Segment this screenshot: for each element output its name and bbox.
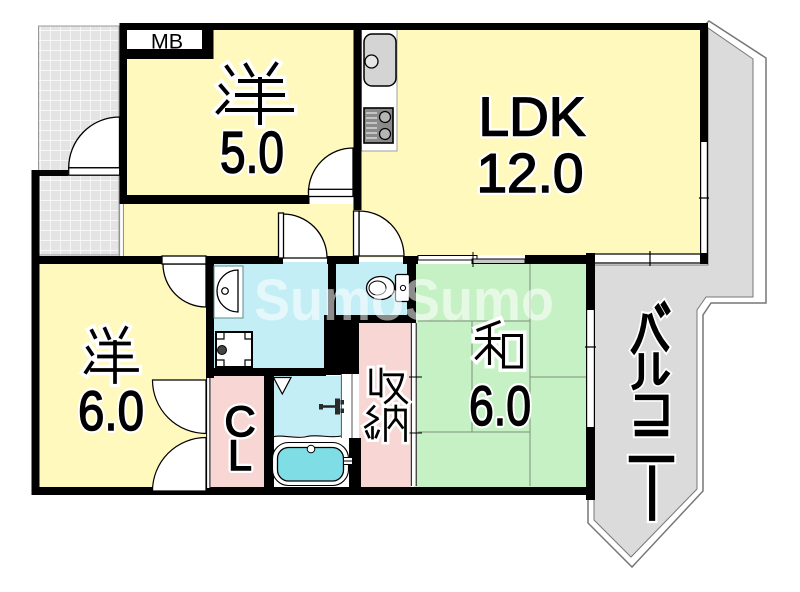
svg-text:5.0: 5.0 bbox=[220, 121, 284, 186]
svg-text:SumoSumo: SumoSumo bbox=[254, 268, 554, 333]
svg-text:6.0: 6.0 bbox=[78, 379, 144, 442]
svg-text:12.0: 12.0 bbox=[476, 142, 583, 204]
svg-text:L: L bbox=[228, 432, 252, 480]
svg-text:6.0: 6.0 bbox=[469, 374, 531, 437]
svg-text:LDK: LDK bbox=[479, 86, 586, 148]
svg-text:MB: MB bbox=[151, 30, 183, 54]
